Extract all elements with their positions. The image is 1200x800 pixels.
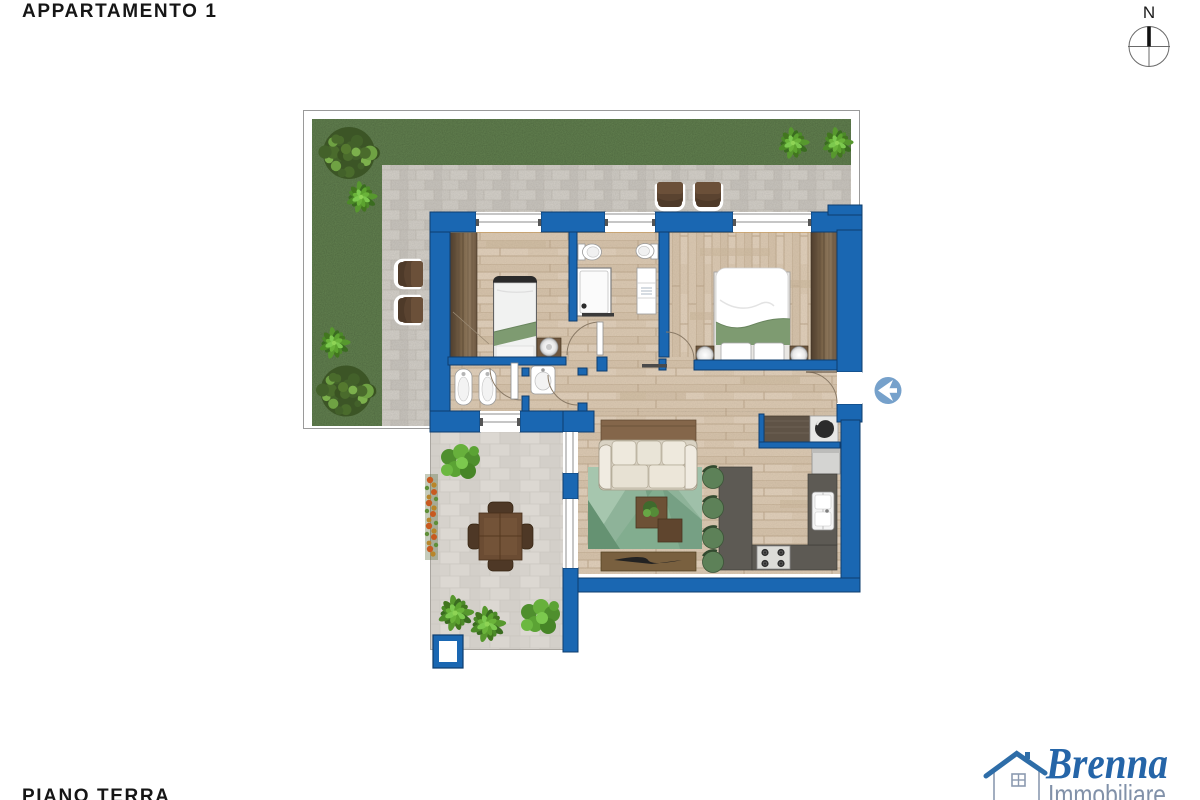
svg-text:Immobiliare: Immobiliare — [1048, 779, 1166, 800]
svg-text:N: N — [1143, 3, 1155, 22]
